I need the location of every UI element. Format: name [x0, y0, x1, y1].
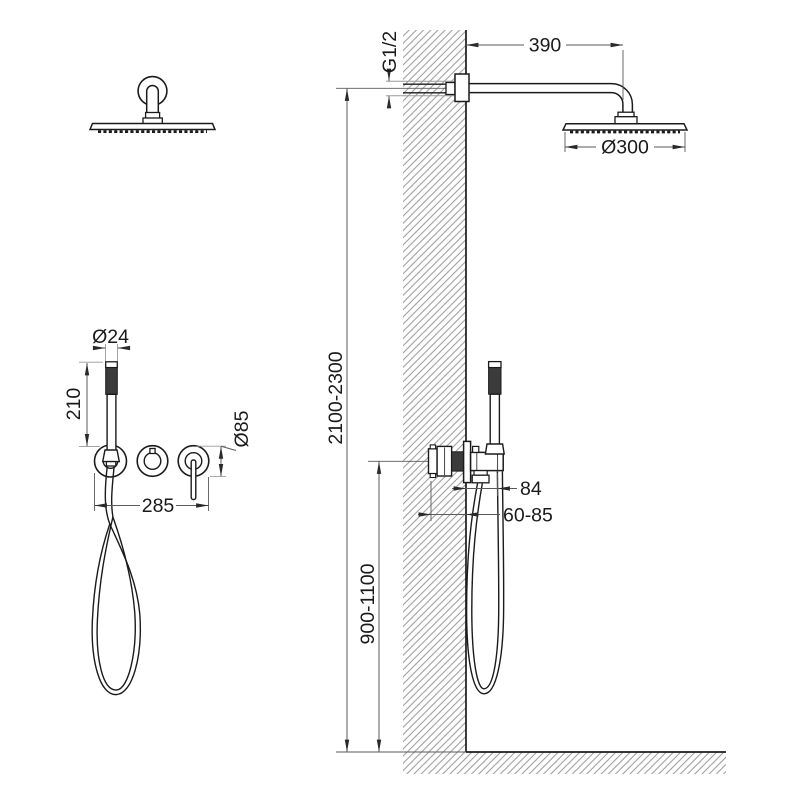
hose-nut-upper: [474, 471, 487, 476]
handshower-cap-front: [106, 362, 118, 368]
side-view-handshower: [485, 362, 504, 454]
valve-threaded-sleeve: [452, 452, 465, 471]
front-view-handshower: [103, 362, 120, 466]
dim-210-label: 210: [63, 388, 85, 421]
head-connector-upper: [618, 112, 634, 117]
front-hose-loop: [92, 466, 140, 695]
dim-handshower-diameter: Ø24: [92, 326, 130, 361]
arm-elbow-inner: [612, 93, 623, 113]
dim-900-label: 900-1100: [357, 563, 379, 644]
dim-g12-label: G1/2: [379, 31, 401, 73]
handshower-body-side: [490, 394, 499, 444]
handshower-knurl-side: [489, 368, 501, 395]
dim-valve-height: 900-1100: [357, 462, 379, 753]
diverter-knob: [144, 453, 161, 470]
dim-head-diameter: Ø300: [565, 132, 685, 159]
hose-loop-inner: [97, 517, 135, 690]
side-head-plate: [563, 124, 687, 130]
dim-arm-length: 390: [466, 35, 623, 101]
diverter-knob-tab: [150, 449, 155, 454]
rough-in-rear-cap: [429, 449, 438, 474]
dim-84-label: 84: [520, 478, 542, 500]
side-hose-inner: [472, 472, 499, 689]
dim-install-height: 2100-2300: [325, 89, 347, 753]
rough-in-tab-bottom: [430, 474, 435, 478]
dim-6085-label: 60-85: [503, 505, 553, 527]
handshower-cap-side: [489, 362, 501, 368]
front-shower-arm-pipe: [147, 86, 159, 114]
shower-system-installation-drawing: 390 G1/2 Ø300 2100-2300 900-1100 84: [0, 0, 800, 800]
mixer-lever-handle: [191, 460, 196, 500]
dim-24-label: Ø24: [92, 326, 129, 348]
side-hose-loop: [467, 472, 504, 694]
floor-hatch: [403, 752, 726, 774]
valve-escutcheon-side: [464, 441, 471, 482]
side-view-concealed-valve: [368, 441, 503, 482]
handshower-body-front: [107, 394, 116, 450]
valve-trim-side: [471, 452, 504, 470]
hose-nut-lower: [472, 475, 489, 483]
rough-in-tab-top: [430, 445, 435, 449]
dim-2100-label: 2100-2300: [325, 351, 347, 444]
front-head-plate: [90, 124, 215, 130]
dim-300-label: Ø300: [601, 137, 649, 159]
inlet-connector: [446, 83, 455, 95]
dim-85-label: Ø85: [231, 410, 253, 447]
handshower-knurl-front: [106, 368, 118, 395]
hose-connector-front: [106, 462, 115, 466]
wall-and-floor-section: [336, 30, 726, 774]
technical-drawing-sheet: 390 G1/2 Ø300 2100-2300 900-1100 84: [0, 0, 800, 800]
dim-handshower-length: 210: [63, 362, 103, 446]
hose-loop-outer: [92, 524, 140, 695]
holder-hook: [473, 446, 479, 452]
handshower-cone-front: [103, 450, 120, 462]
dim-inlet-thread: G1/2: [379, 31, 401, 103]
handshower-cone-side: [485, 444, 504, 454]
wall-hatch: [403, 30, 466, 752]
dim-285-label: 285: [142, 495, 175, 517]
arm-wall-flange: [455, 74, 469, 102]
front-view-rain-shower-head: [90, 77, 215, 132]
head-connector-nut: [615, 117, 637, 124]
dim-390-label: 390: [529, 35, 562, 57]
